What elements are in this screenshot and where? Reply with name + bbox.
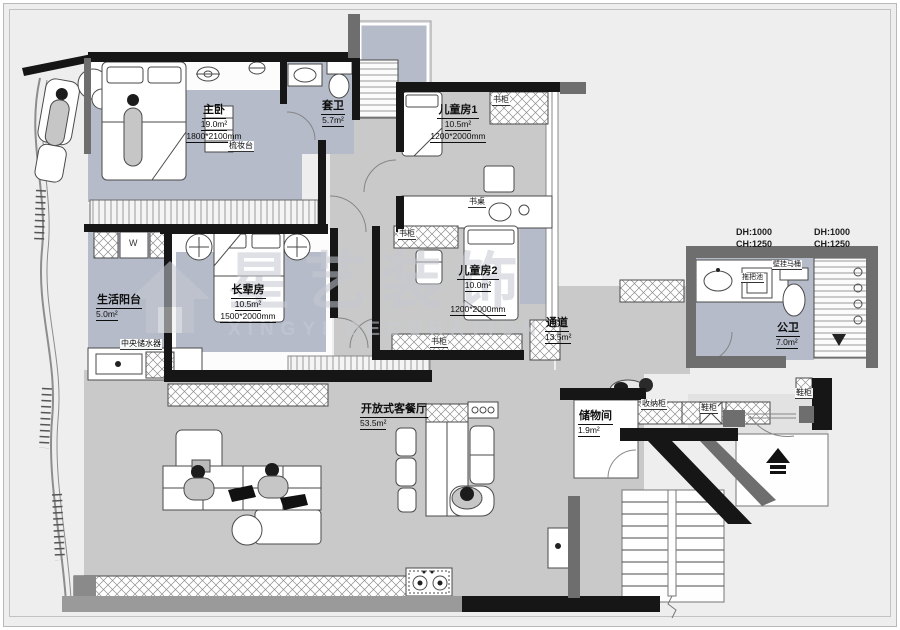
room-label-elders: 长辈房 10.5m² 1500*2000mm (202, 284, 294, 323)
storage-cabinet-label: 收纳柜 (641, 399, 667, 410)
bookcase-label-kids1: 书柜 (492, 95, 510, 106)
central-water-heater-label: 中央储水器 (120, 339, 162, 350)
mop-sink-label: 拖把池 (741, 273, 764, 283)
dressing-table-label: 梳妆台 (228, 141, 254, 152)
room-label-master: 主卧 19.0m² 1800*2100mm (158, 104, 270, 143)
niche-annotation-left: DH:1000 CH:1250 (736, 226, 772, 250)
room-label-public-bath: 公卫 7.0m² (776, 322, 800, 349)
room-label-corridor: 通道 13.5m² (545, 317, 571, 344)
wall-hung-toilet-label: 壁挂马桶 (772, 260, 802, 270)
washer-label: W (129, 238, 138, 248)
shoe-cabinet-label-left: 鞋柜 (700, 403, 718, 414)
room-label-ensuite: 套卫 5.7m² (310, 100, 356, 127)
floorplan-page: 星艺装饰 XINGYI DECORATION 主卧 19.0m² 1800*21… (0, 0, 900, 630)
room-label-living: 开放式客餐厅 53.5m² (360, 403, 428, 430)
room-label-kids1: 儿童房1 10.5m² 1200*2000mm (412, 104, 504, 143)
niche-annotation-right: DH:1000 CH:1250 (814, 226, 850, 250)
room-label-kids2: 儿童房2 10.0m² 1200*2000mm (432, 265, 524, 316)
niche-left-ch: CH:1250 (736, 238, 772, 250)
bookcase-label-kids2-bottom: 书柜 (430, 337, 448, 348)
niche-right-dh: DH:1000 (814, 226, 850, 238)
tv-cabinet (168, 384, 328, 406)
niche-left-dh: DH:1000 (736, 226, 772, 238)
desk-label: 书桌 (468, 197, 486, 208)
bookcase-label-kids2-top: 书柜 (398, 229, 416, 240)
shoe-cabinet-label-right: 鞋柜 (795, 388, 813, 399)
room-label-storage: 储物间 1.9m² (578, 410, 613, 437)
niche-right-ch: CH:1250 (814, 238, 850, 250)
room-label-balcony: 生活阳台 5.0m² (96, 294, 142, 321)
